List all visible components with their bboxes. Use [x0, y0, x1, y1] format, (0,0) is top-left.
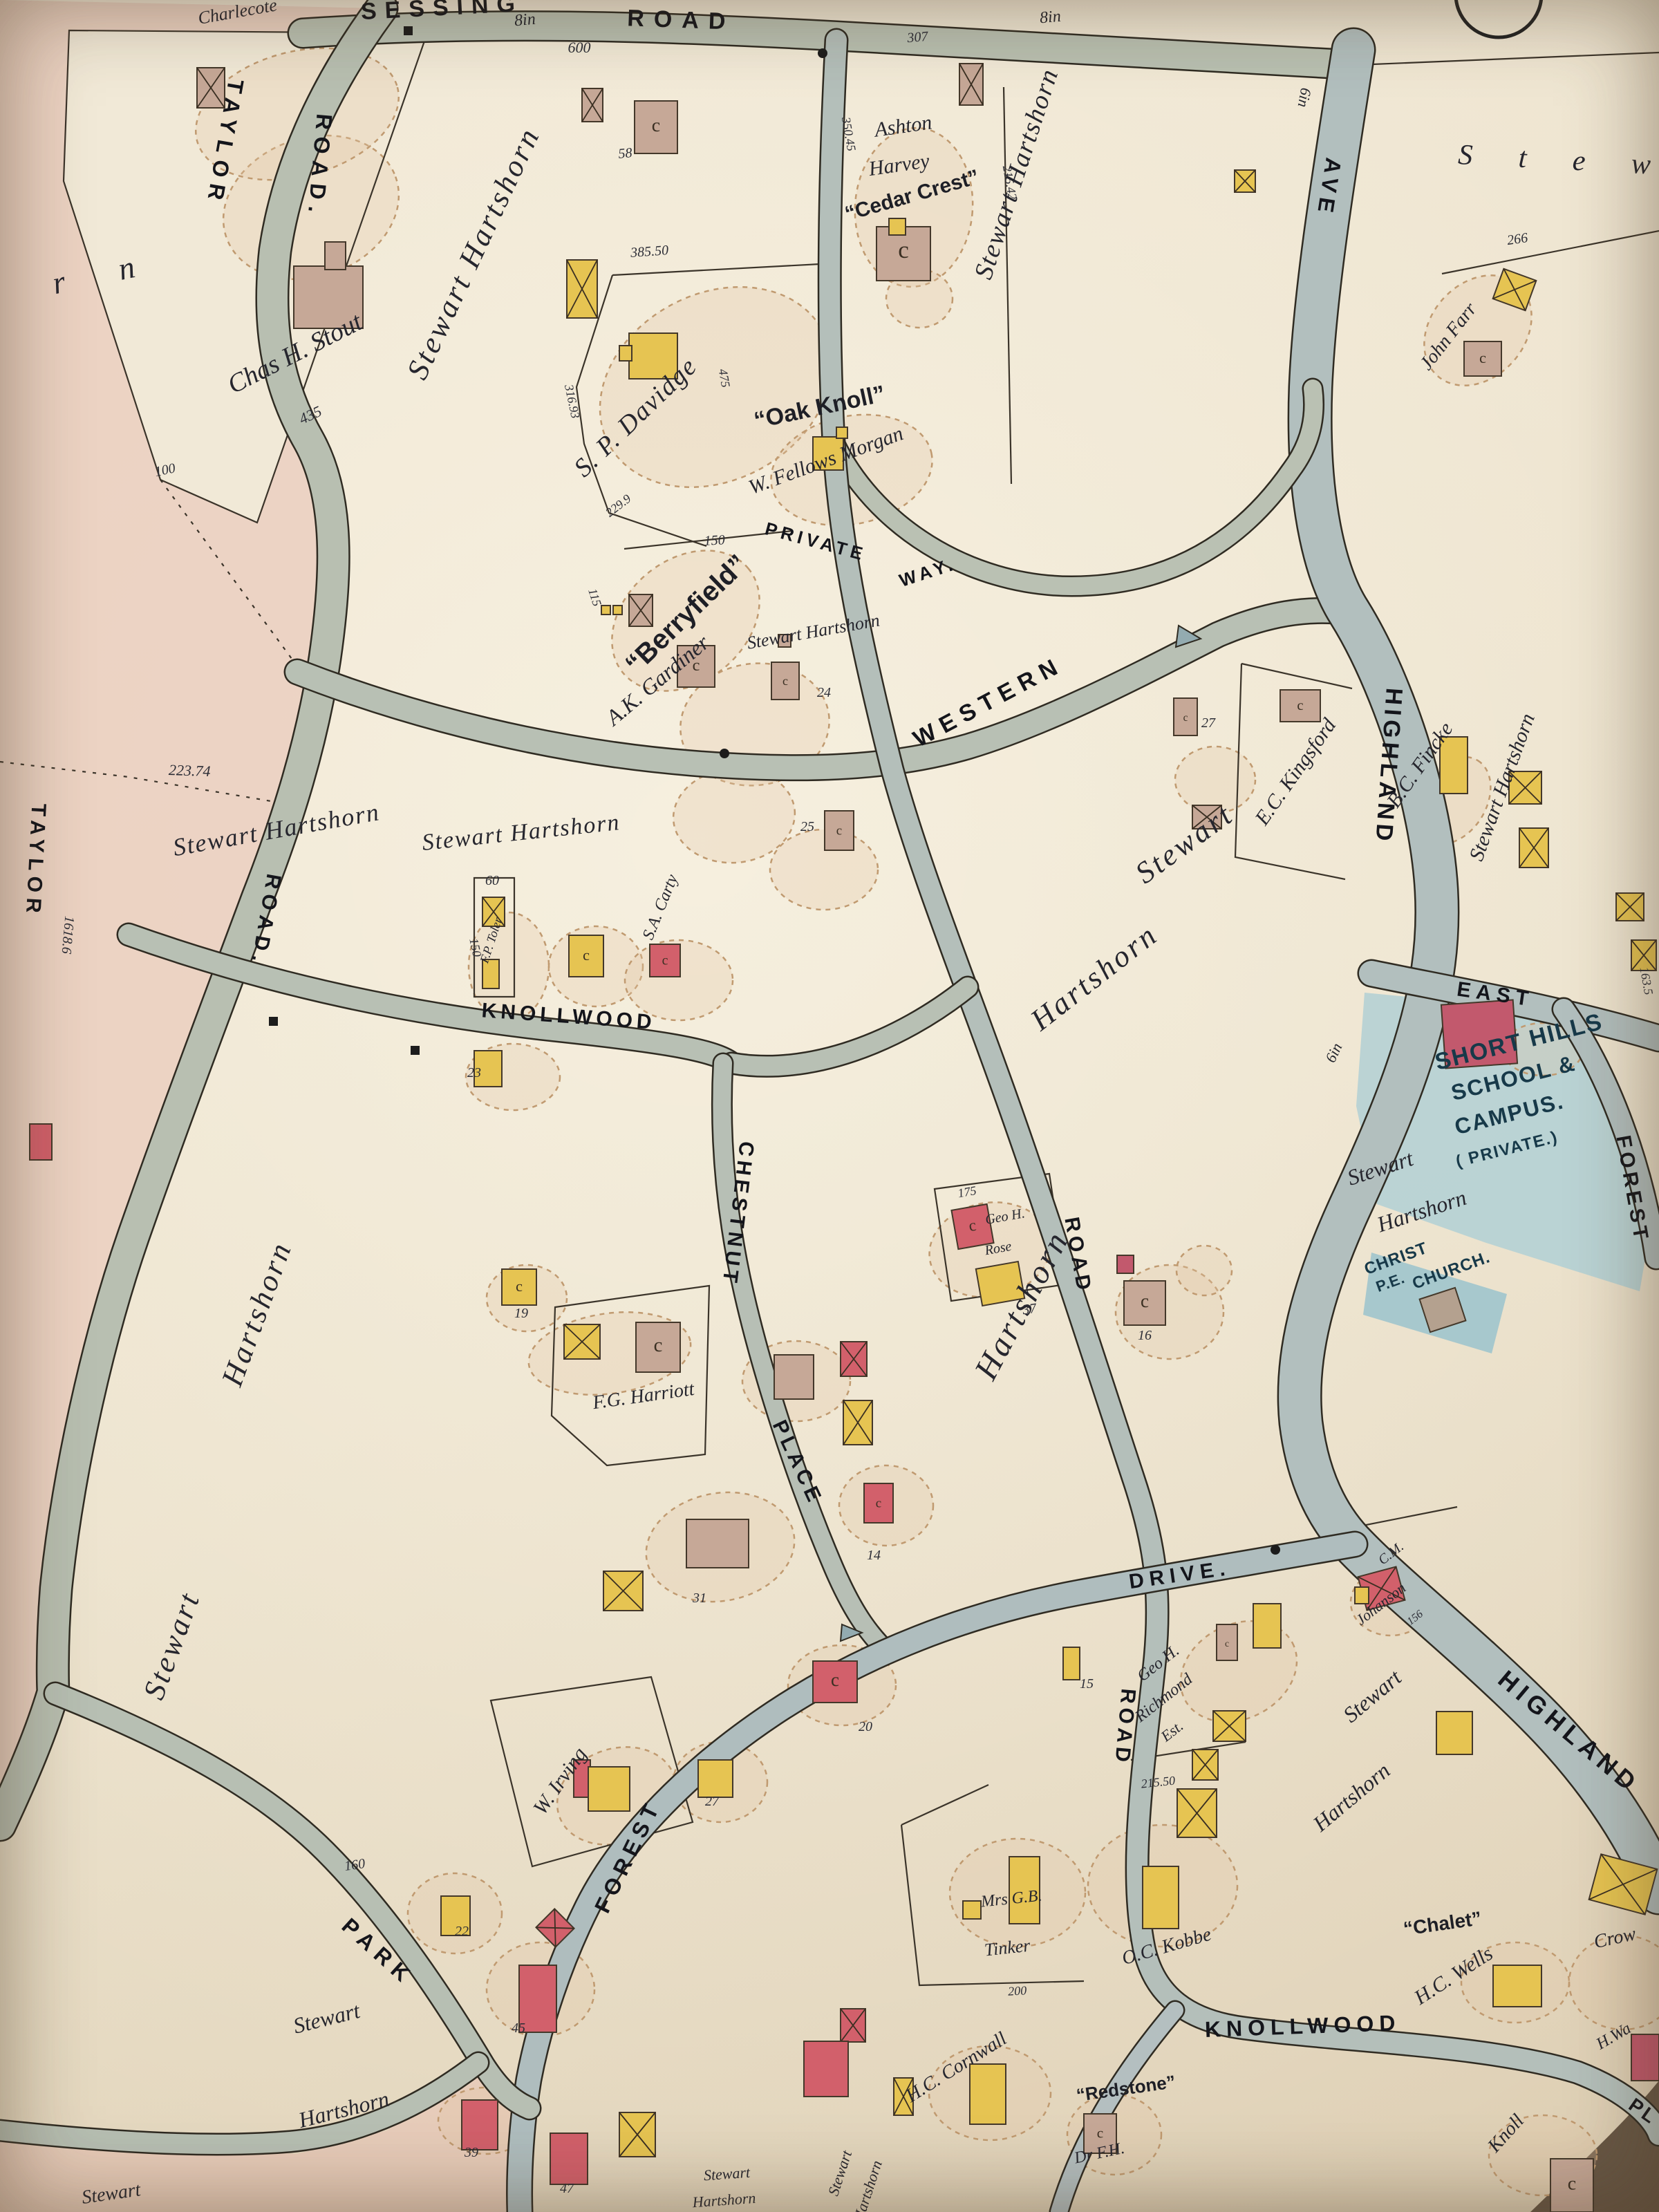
farr-266-line	[1442, 231, 1659, 274]
building-hartshorn24-house: c	[771, 662, 799, 700]
berryfield-shed1-footprint	[601, 606, 610, 615]
road-label-sessing-road: ROAD	[627, 5, 735, 35]
atlas-map-page: cccccccccccccccccccSESSINGROAD8in8inTAYL…	[0, 0, 1659, 2212]
building-leftedge-house	[30, 1124, 52, 1160]
owner-stewart-btm: Stewart	[703, 2164, 751, 2184]
num-31: 31	[692, 1591, 706, 1606]
building-parcel47-outb	[619, 2112, 655, 2157]
building-kobbe-house	[1143, 1866, 1179, 1929]
parcel58-house-class-mark: c	[652, 115, 660, 136]
num-200: 200	[1008, 1983, 1027, 1998]
num-385-50: 385.50	[629, 243, 668, 261]
num-19: 19	[514, 1306, 528, 1321]
road-label-way: WAY.	[897, 553, 959, 591]
building-chestnut-yellow-outb	[843, 1400, 872, 1445]
monument-square-0	[404, 26, 413, 35]
owner-carty: S.A. Carty	[639, 872, 682, 942]
building-parcel15-house	[1063, 1647, 1080, 1680]
building-crow-house	[1631, 2034, 1659, 2081]
monument-square-2	[411, 1046, 420, 1055]
parcel16-house-class-mark: c	[1141, 1291, 1149, 1311]
parcel19-house-class-mark: c	[516, 1277, 523, 1295]
building-parcel20-house: c	[813, 1661, 857, 1703]
toler-house-footprint	[482, 959, 499, 988]
num-60: 60	[485, 873, 499, 888]
num-14: 14	[867, 1548, 881, 1563]
num-58: 58	[618, 145, 633, 162]
num-39: 39	[464, 2145, 478, 2160]
plate-number-circle	[1456, 0, 1541, 37]
building-toproad-outbuilding	[1235, 170, 1255, 192]
building-forest-red-outb	[841, 2009, 865, 2042]
knoll-house-class-mark: c	[1568, 2173, 1576, 2195]
tinker-shed-footprint	[963, 1901, 981, 1919]
owner-hartshorn-se: Hartshorn	[1308, 1758, 1395, 1837]
valve-dot-1	[720, 749, 729, 758]
building-parcel39-house	[462, 2100, 498, 2150]
cedarcrest-house-class-mark: c	[898, 236, 909, 263]
num-215-50: 215.50	[1141, 1774, 1176, 1791]
num-37: 37	[1021, 1301, 1038, 1318]
building-parcel25-house: c	[825, 811, 854, 850]
building-richmond-outb1	[1213, 1711, 1246, 1741]
building-harriott-house: c	[636, 1322, 680, 1372]
map-canvas: cccccccccccccccccccSESSINGROAD8in8inTAYL…	[0, 0, 1659, 2212]
kingsford-house-class-mark: c	[1297, 698, 1303, 713]
pipe-6in-2: 6in	[1322, 1040, 1346, 1065]
building-carty-house: c	[650, 944, 680, 977]
owner-hartshorn-center: Hartshorn	[1024, 917, 1165, 1038]
building-oakknoll-stub	[836, 427, 847, 438]
num-115: 115	[585, 587, 604, 608]
num-15: 15	[1080, 1676, 1094, 1691]
owner-hartshorn-topleft: Stewart Hartshorn	[400, 122, 547, 384]
cornwall-house-footprint	[970, 2064, 1006, 2124]
parcel15-house-footprint	[1063, 1647, 1080, 1680]
parcel16-shed-footprint	[1117, 1255, 1134, 1273]
building-cornwall-house	[970, 2064, 1006, 2124]
redstone-house-class-mark: c	[1097, 2125, 1103, 2141]
johanson-wing-footprint	[1355, 1587, 1369, 1604]
pipe-6in-1: 6in	[1295, 86, 1315, 109]
owner-stewart-center: Stewart	[1129, 797, 1239, 890]
num-27: 27	[1201, 715, 1216, 731]
parcel27b-house-footprint	[698, 1760, 733, 1797]
building-parcel58-house: c	[635, 101, 677, 153]
building-parcel31-house	[686, 1519, 749, 1568]
num-266: 266	[1506, 230, 1529, 248]
richmond-yellow-footprint	[1253, 1604, 1281, 1648]
pipe-8in-2: 8in	[1039, 8, 1062, 28]
building-johanson-wing	[1355, 1587, 1369, 1604]
building-davidge-wing	[619, 346, 632, 361]
farr-house-class-mark: c	[1479, 349, 1486, 366]
driveway-loop-6	[1403, 254, 1554, 407]
owner-richmond-3: Est.	[1157, 1717, 1187, 1745]
num-24: 24	[817, 685, 831, 700]
road-knollwood-connector	[731, 987, 968, 1066]
hartshorn-se-house-footprint	[1436, 1712, 1472, 1754]
building-parcel19-house: c	[502, 1269, 536, 1305]
building-hartshorn-right-outb2	[1519, 828, 1548, 868]
owner-hartshorn-forest: Hartshorn	[850, 2158, 885, 2212]
owner-hartshorn-btm: Hartshorn	[691, 2189, 756, 2211]
building-toler-house	[482, 959, 499, 988]
owner-stew-topright: S t e w	[1457, 139, 1659, 182]
davidge-north-line	[612, 264, 820, 275]
building-richmond-yellow	[1253, 1604, 1281, 1648]
building-berryfield-shed1	[601, 606, 610, 615]
parcel31-house-footprint	[686, 1519, 749, 1568]
num-47: 47	[560, 2181, 574, 2196]
building-kobbe-outbuilding	[1177, 1789, 1217, 1837]
harriott-house-class-mark: c	[654, 1334, 663, 1356]
building-wells-house	[1493, 1965, 1541, 2007]
parcel39-house-footprint	[462, 2100, 498, 2150]
building-richmond-outb2	[1192, 1750, 1218, 1780]
valve-dot-0	[818, 48, 827, 58]
building-hartshorn-se-house	[1436, 1712, 1472, 1754]
building-chestnut-red-outb	[841, 1342, 867, 1376]
num-316-93: 316.93	[562, 382, 583, 420]
num-16: 16	[1138, 1328, 1152, 1343]
num-307: 307	[906, 29, 930, 46]
parcel20-house-class-mark: c	[831, 1669, 839, 1690]
num-22: 22	[455, 1924, 469, 1939]
kobbe-house-footprint	[1143, 1866, 1179, 1929]
irving-house-footprint	[588, 1767, 630, 1811]
building-cedarcrest-outbuilding	[959, 64, 983, 105]
building-berryfield-outbuilding	[629, 594, 653, 626]
stout-wing-footprint	[325, 242, 346, 270]
building-davidge-outbuilding	[567, 260, 597, 318]
num-150-toler: 150	[467, 937, 484, 958]
building-parcel27-house: c	[1174, 698, 1197, 735]
chestnut-tan-house-footprint	[774, 1355, 814, 1399]
building-harriott-outbuilding	[564, 1324, 600, 1359]
building-knollwood-yellow-house: c	[569, 935, 603, 977]
building-farr-house: c	[1464, 341, 1501, 376]
valve-dot-2	[1271, 1545, 1280, 1555]
carty-house-class-mark: c	[662, 953, 668, 968]
driveway-loop-20	[1177, 1246, 1232, 1295]
building-parcel27b-house	[698, 1760, 733, 1797]
building-parcel16-house: c	[1124, 1281, 1165, 1325]
topright-line	[1356, 53, 1659, 65]
owner-stewart-forest: Stewart	[825, 2148, 856, 2198]
parcel27-house-class-mark: c	[1183, 712, 1188, 724]
building-parcel47-house	[550, 2133, 588, 2184]
num-150-berry: 150	[704, 532, 725, 549]
num-223-74: 223.74	[169, 761, 211, 780]
num-25: 25	[800, 819, 814, 834]
monument-square-1	[269, 1017, 278, 1026]
oakknoll-stub-footprint	[836, 427, 847, 438]
building-irving-house	[588, 1767, 630, 1811]
knollwood-yellow-house-class-mark: c	[583, 946, 590, 964]
num-600: 600	[568, 39, 591, 56]
berryfield-shed2-footprint	[613, 606, 622, 615]
parcel25-house-class-mark: c	[836, 824, 842, 838]
owner-hartshorn-leftbig: Hartshorn	[214, 1237, 298, 1391]
crow-house-footprint	[1631, 2034, 1659, 2081]
pipe-8in-1: 8in	[514, 10, 536, 30]
num-45: 45	[512, 2021, 525, 2036]
building-rightedge-outb2	[1631, 940, 1656, 971]
building-knoll-house: c	[1550, 2159, 1593, 2212]
cedarcrest-yellow-footprint	[889, 218, 906, 235]
owner-stewart-se: Stewart	[1338, 1665, 1407, 1727]
forest-red-house-footprint	[804, 2041, 848, 2097]
parcel47-house-footprint	[550, 2133, 588, 2184]
building-parcel14-house: c	[864, 1483, 893, 1523]
building-richmond-house: c	[1217, 1624, 1237, 1660]
num-27b: 27	[705, 1794, 720, 1809]
hartshorn24-house-class-mark: c	[782, 674, 788, 688]
building-rightedge-outb1	[1616, 893, 1644, 921]
building-cedarcrest-yellow	[889, 218, 906, 235]
richmond-house-class-mark: c	[1225, 1638, 1229, 1649]
davidge-wing-footprint	[619, 346, 632, 361]
building-chestnut-tan-house	[774, 1355, 814, 1399]
parcel14-house-class-mark: c	[876, 1497, 881, 1511]
owner-stewart-bl: Stewart	[291, 1998, 364, 2038]
owner-hartshorn-arc: Stewart Hartshorn	[421, 809, 621, 856]
building-parcel16-shed	[1117, 1255, 1134, 1273]
building-parcel31-outbuilding	[603, 1571, 643, 1611]
building-berryfield-shed2	[613, 606, 622, 615]
num-20: 20	[859, 1719, 872, 1734]
wells-house-footprint	[1493, 1965, 1541, 2007]
building-parcel58-outbuilding	[582, 88, 603, 122]
owner-tinker: Tinker	[984, 1935, 1032, 1960]
estate-chalet: “Chalet”	[1402, 1907, 1483, 1940]
owner-stewart-leftbig: Stewart	[137, 1586, 207, 1703]
driveway-loop-38	[1569, 1935, 1659, 2030]
num-160: 160	[344, 1856, 366, 1874]
owner-kingsford: E.C. Kingsford	[1250, 714, 1341, 830]
building-forest-red-house	[804, 2041, 848, 2097]
building-tinker-shed	[963, 1901, 981, 1919]
building-kingsford-house: c	[1280, 690, 1320, 722]
num-23: 23	[467, 1065, 481, 1080]
building-stout-wing	[325, 242, 346, 270]
leftedge-house-footprint	[30, 1124, 52, 1160]
num-175: 175	[957, 1183, 977, 1200]
